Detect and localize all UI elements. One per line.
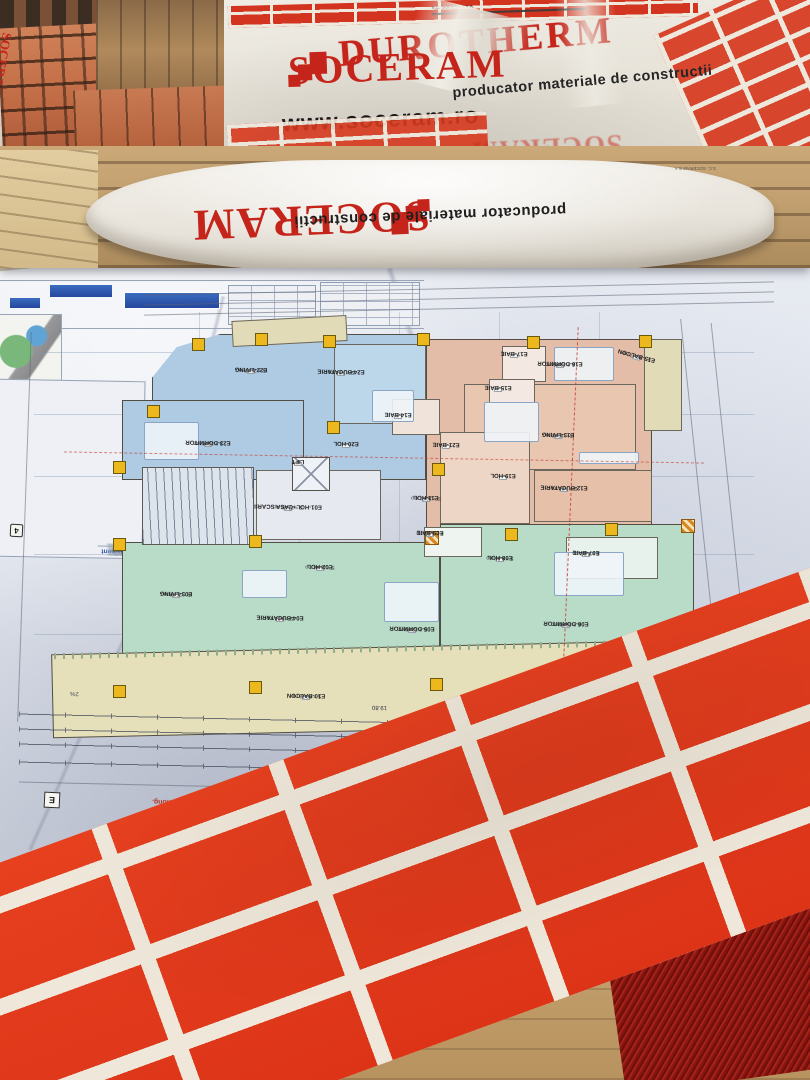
room-area: S = 8.07 mp <box>266 614 293 620</box>
column-marker-hatched <box>681 519 695 533</box>
room-area: S = 3.55 mp <box>416 529 443 535</box>
room-label-e20: E20-HOL <box>342 444 350 448</box>
room-e15-balcon <box>644 339 682 431</box>
room-name: E17-BAIE <box>500 349 527 356</box>
room-name: E20-HOL <box>333 439 358 446</box>
clay-bricks-row <box>73 85 235 153</box>
room-name: E19-HOL <box>490 471 515 478</box>
room-name: E15-BAIE <box>484 383 511 390</box>
room-name: E14-BAIE <box>384 410 411 417</box>
column-marker <box>113 461 126 474</box>
column-marker <box>327 421 340 434</box>
room-label-e17: E17-BAIE <box>510 354 518 358</box>
room-area: S = 21.07 mp <box>236 366 266 372</box>
room-area: S = 11.14 mp <box>305 563 335 569</box>
grid-bubble-E: E <box>44 792 61 809</box>
lift-label: LIFT <box>294 462 302 466</box>
room-label-e22: E22-LIVINGS = 21.07 mp <box>247 370 255 374</box>
table-furniture <box>242 570 287 598</box>
room-label-e10: E10-BALCONS = 40.78 mp <box>302 696 310 700</box>
column-marker <box>432 463 445 476</box>
materials-stack-band: S.C. SOCERAM S.A. DUROTHERM SOCERAM prod… <box>0 0 810 268</box>
room-area: S = 10.91 mp <box>411 494 441 500</box>
room-label-e07: E07-BAIES = 7.02 mp <box>582 553 590 557</box>
room-label-e14: E14-BAIE <box>394 415 402 419</box>
bag-fold <box>554 0 625 109</box>
title-block-border <box>0 280 424 281</box>
slope-label: 2% <box>70 690 79 696</box>
approval-stamp-blue-small <box>10 298 40 308</box>
room-area: S = 15.67 mp <box>551 620 581 626</box>
total-dimension: 19.80 <box>372 704 387 710</box>
column-marker <box>323 335 336 348</box>
room-label-e09: E09-BAIES = 3.55 mp <box>426 533 434 537</box>
staircase-hatch <box>142 467 254 545</box>
soceram-bag-middle-upside-down: S.C. SOCERAM S.A. SOCERAM producator mat… <box>86 160 774 268</box>
room-label-e21: E21-BAIE <box>442 445 450 449</box>
room-label-e13: E13-LIVINGS = 18.60 mp <box>554 435 562 439</box>
room-area: S = 23.30 mp <box>273 503 303 509</box>
room-label-e04: E04-BUCATARIES = 8.07 mp <box>276 618 284 622</box>
room-area: S = 12.40 mp <box>397 625 427 631</box>
column-marker <box>417 333 430 346</box>
column-marker <box>249 535 262 548</box>
room-label-e23: E23-DORMITORS = 15.81 mp <box>204 443 212 447</box>
room-area: S = 15.81 mp <box>193 439 223 445</box>
room-area: S = 7.67 mp <box>327 368 354 374</box>
room-label-e16: E16-DORMITORS = 13.86 mp <box>556 364 564 368</box>
column-marker <box>113 538 126 551</box>
room-name: E21-BAIE <box>432 440 459 447</box>
bed-furniture <box>554 552 624 596</box>
room-e12-bucatarie <box>534 470 652 522</box>
room-area: S = 5.36 mp <box>486 554 513 560</box>
wood-planks-left <box>0 150 98 268</box>
room-label-e06: E06-DORMITORS = 15.67 mp <box>562 624 570 628</box>
room-label-e08: E08-HOLS = 5.36 mp <box>496 558 504 562</box>
title-block-border <box>0 328 424 329</box>
construction-site-photo: S.C. SOCERAM S.A. DUROTHERM SOCERAM prod… <box>0 0 810 1080</box>
column-marker <box>430 678 443 691</box>
room-label-e24: E24-BUCATARIES = 7.67 mp <box>337 372 345 376</box>
column-marker <box>527 336 540 349</box>
room-area: S = 25.59 mp <box>161 590 191 596</box>
room-label-e03: E03-LIVINGS = 25.59 mp <box>172 594 180 598</box>
room-area: S = 40.78 mp <box>291 692 321 698</box>
room-area: S = 13.86 mp <box>545 360 575 366</box>
room-label-e05: E05-DORMITORS = 12.40 mp <box>408 629 416 633</box>
column-marker <box>505 528 518 541</box>
room-label-e15-baie: E15-BAIE <box>494 388 502 392</box>
lift-label-text: LIFT <box>292 457 305 464</box>
wood-crate <box>96 0 236 92</box>
room-area: S = 18.60 mp <box>543 431 573 437</box>
column-marker <box>639 335 652 348</box>
room-label-e01: E01-HOL+CASA SCARIIS = 23.30 mp <box>284 507 292 511</box>
grid-bubble-4: 4 <box>10 524 24 538</box>
bed-furniture <box>384 582 439 622</box>
column-marker <box>605 523 618 536</box>
column-marker <box>192 338 205 351</box>
column-marker <box>255 333 268 346</box>
approval-stamp-blue <box>50 285 112 297</box>
column-marker <box>113 685 126 698</box>
brand-fragment-text: SOCERAM <box>0 31 15 92</box>
room-label-e02: E02-HOLS = 11.14 mp <box>316 567 324 571</box>
column-marker <box>147 405 160 418</box>
room-area: S = 7.02 mp <box>572 549 599 555</box>
dining-table-furniture <box>484 402 539 442</box>
room-label-e12: E12-BUCATARIES = 7.65 mp <box>560 488 568 492</box>
room-label-e19: E19-HOL <box>499 476 507 480</box>
room-label-e11: E11-HOLS = 10.91 mp <box>422 498 430 502</box>
column-marker <box>249 681 262 694</box>
room-area: S = 7.65 mp <box>550 484 577 490</box>
